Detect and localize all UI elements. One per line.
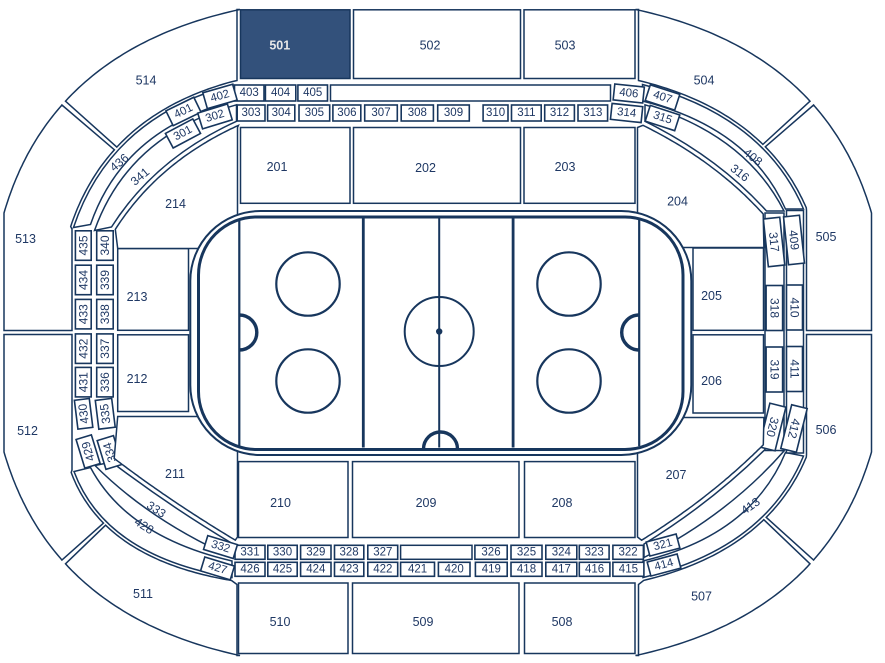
svg-text:404: 404	[271, 87, 291, 99]
svg-text:325: 325	[517, 546, 536, 558]
svg-text:510: 510	[270, 615, 291, 629]
svg-text:335: 335	[97, 403, 113, 425]
svg-text:318: 318	[767, 298, 781, 318]
svg-text:505: 505	[816, 230, 837, 244]
svg-text:512: 512	[17, 424, 38, 438]
svg-text:432: 432	[76, 338, 90, 358]
svg-text:312: 312	[550, 107, 569, 119]
svg-text:435: 435	[76, 235, 90, 255]
svg-text:405: 405	[303, 87, 322, 99]
svg-text:425: 425	[273, 563, 292, 575]
svg-text:433: 433	[76, 304, 90, 324]
svg-text:212: 212	[127, 372, 148, 386]
svg-text:307: 307	[371, 107, 390, 119]
svg-text:422: 422	[373, 563, 392, 575]
svg-text:506: 506	[816, 423, 837, 437]
svg-text:204: 204	[667, 195, 688, 209]
svg-text:423: 423	[340, 563, 359, 575]
svg-text:317: 317	[766, 231, 782, 253]
svg-text:507: 507	[691, 590, 712, 604]
svg-text:336: 336	[98, 372, 112, 392]
svg-text:502: 502	[420, 39, 441, 53]
svg-text:206: 206	[701, 374, 722, 388]
svg-text:319: 319	[767, 359, 781, 379]
svg-text:424: 424	[306, 563, 326, 575]
svg-text:509: 509	[413, 615, 434, 629]
svg-text:214: 214	[165, 197, 186, 211]
svg-text:328: 328	[340, 546, 359, 558]
svg-text:205: 205	[701, 289, 722, 303]
svg-text:513: 513	[15, 232, 36, 246]
svg-text:331: 331	[240, 546, 259, 558]
svg-text:417: 417	[552, 563, 571, 575]
svg-text:508: 508	[552, 615, 573, 629]
svg-text:330: 330	[273, 546, 292, 558]
svg-text:326: 326	[481, 546, 500, 558]
svg-text:338: 338	[98, 304, 112, 324]
svg-text:511: 511	[133, 587, 153, 601]
svg-text:213: 213	[127, 290, 148, 304]
svg-text:304: 304	[272, 107, 292, 119]
svg-text:303: 303	[242, 107, 261, 119]
svg-text:504: 504	[694, 74, 715, 88]
svg-text:203: 203	[555, 160, 576, 174]
svg-text:501: 501	[269, 39, 290, 53]
svg-text:329: 329	[306, 546, 325, 558]
svg-text:201: 201	[267, 160, 288, 174]
svg-text:419: 419	[482, 563, 501, 575]
svg-text:411: 411	[788, 359, 802, 378]
svg-text:322: 322	[619, 546, 638, 558]
svg-text:418: 418	[517, 563, 536, 575]
svg-text:306: 306	[337, 107, 356, 119]
svg-text:503: 503	[555, 39, 576, 53]
svg-text:403: 403	[240, 87, 259, 99]
svg-text:324: 324	[552, 546, 572, 558]
svg-text:420: 420	[445, 563, 464, 575]
svg-text:431: 431	[76, 372, 90, 392]
svg-text:308: 308	[408, 107, 427, 119]
svg-text:211: 211	[165, 467, 185, 481]
svg-text:208: 208	[552, 496, 573, 510]
svg-text:309: 309	[444, 107, 463, 119]
svg-text:421: 421	[408, 563, 427, 575]
svg-text:415: 415	[619, 563, 638, 575]
svg-text:314: 314	[616, 106, 637, 120]
svg-text:311: 311	[517, 107, 535, 119]
svg-text:514: 514	[136, 74, 157, 88]
svg-text:305: 305	[305, 107, 324, 119]
svg-text:207: 207	[666, 468, 687, 482]
svg-text:429: 429	[78, 440, 97, 464]
svg-text:310: 310	[486, 107, 505, 119]
svg-text:339: 339	[98, 270, 112, 290]
svg-text:210: 210	[270, 496, 291, 510]
svg-text:340: 340	[98, 235, 112, 255]
svg-text:202: 202	[415, 161, 436, 175]
svg-text:323: 323	[585, 546, 604, 558]
svg-text:337: 337	[98, 338, 112, 358]
svg-text:416: 416	[585, 563, 604, 575]
svg-text:406: 406	[619, 87, 639, 101]
svg-text:313: 313	[583, 107, 602, 119]
svg-text:327: 327	[373, 546, 392, 558]
svg-text:434: 434	[76, 270, 90, 290]
svg-text:410: 410	[788, 297, 802, 317]
svg-text:209: 209	[416, 496, 437, 510]
svg-text:430: 430	[75, 403, 91, 425]
svg-text:409: 409	[786, 229, 802, 251]
svg-text:426: 426	[240, 563, 259, 575]
